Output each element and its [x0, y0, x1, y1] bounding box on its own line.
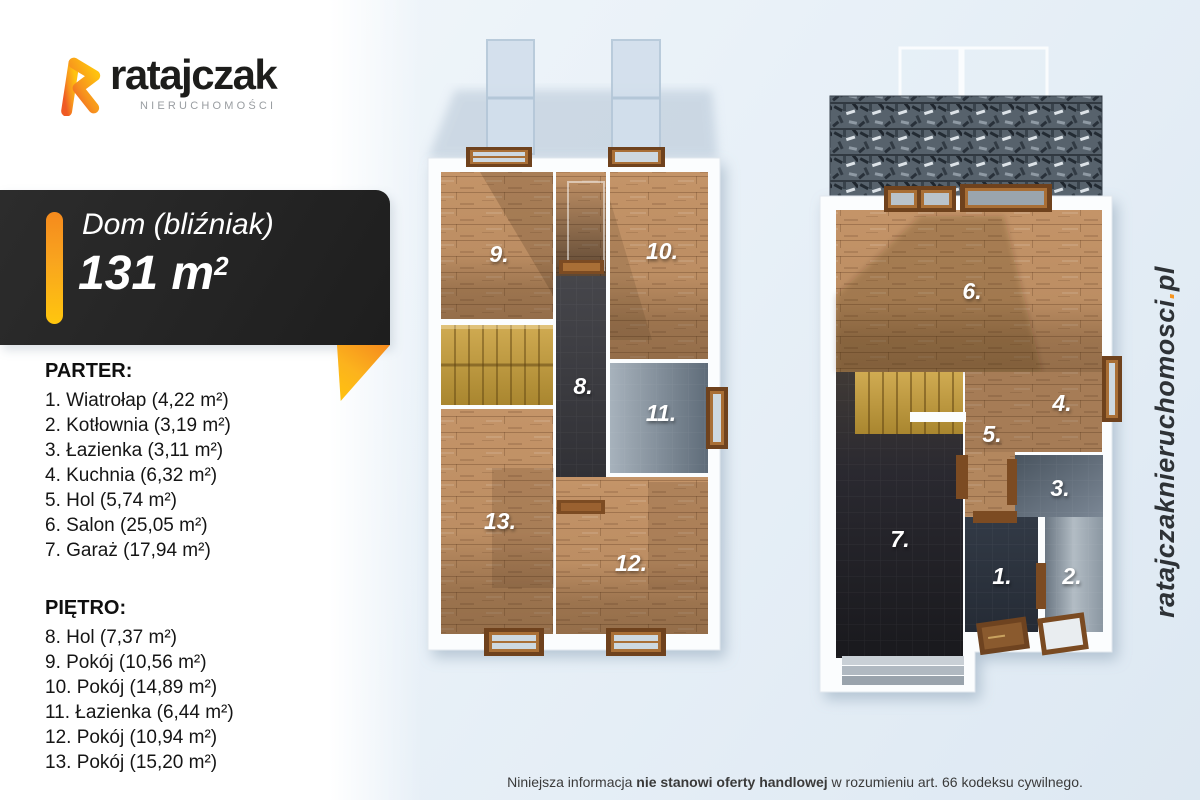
website-url: ratajczaknieruchomosci.pl [1150, 242, 1194, 642]
room-label-9: 9. [489, 241, 508, 267]
room-label-3: 3. [1050, 475, 1069, 501]
upper-staircase [441, 325, 553, 405]
upper-window-top-right [608, 147, 665, 167]
ground-floor-heading: PARTER: [45, 360, 385, 383]
ground-window-top-wide [960, 184, 1052, 212]
room-label-4: 4. [1051, 390, 1071, 416]
brand-logo: ratajczak NIERUCHOMOŚCI [50, 52, 276, 116]
room-label-5: 5. [982, 421, 1001, 447]
list-item: 6. Salon (25,05 m²) [45, 513, 385, 538]
list-item: 10. Pokój (14,89 m²) [45, 675, 385, 700]
property-title-card: Dom (bliźniak) 131 m2 [0, 190, 390, 345]
stairwell-rail [559, 260, 604, 274]
legal-disclaimer: Niniejsza informacja nie stanowi oferty … [390, 774, 1200, 790]
room-label-8: 8. [573, 373, 592, 399]
list-item: 3. Łazienka (3,11 m²) [45, 438, 385, 463]
website-name: ratajczaknieruchomosci [1150, 299, 1180, 618]
upper-floor-room-list: PIĘTRO: 8. Hol (7,37 m²) 9. Pokój (10,56… [45, 597, 385, 775]
brand-name: ratajczak [110, 52, 276, 98]
website-dot: . [1150, 291, 1180, 299]
room-label-12: 12. [615, 550, 647, 576]
room-10-floor [610, 172, 708, 359]
upper-floor-plan: 8. 9. 10. 11. 12. 13. [428, 40, 728, 656]
list-item: 7. Garaż (17,94 m²) [45, 538, 385, 563]
garage-door [842, 656, 964, 685]
area-superscript: 2 [214, 251, 228, 281]
property-type: Dom (bliźniak) [82, 208, 274, 242]
accent-bar [46, 212, 63, 324]
brand-subtitle: NIERUCHOMOŚCI [110, 100, 276, 112]
list-item: 4. Kuchnia (6,32 m²) [45, 463, 385, 488]
website-tld: pl [1150, 266, 1180, 291]
list-item: 8. Hol (7,37 m²) [45, 625, 385, 650]
upper-window-bottom-right [606, 628, 666, 656]
terrace [830, 96, 1102, 198]
flyer-canvas: 8. 9. 10. 11. 12. 13. [0, 0, 1200, 800]
disclaimer-suffix: w rozumieniu art. 66 kodeksu cywilnego. [828, 774, 1083, 790]
upper-window-bottom-left [484, 628, 544, 656]
list-item: 1. Wiatrołap (4,22 m²) [45, 388, 385, 413]
list-item: 9. Pokój (10,56 m²) [45, 650, 385, 675]
ratajczak-logo-icon [50, 52, 102, 116]
disclaimer-bold: nie stanowi oferty handlowej [636, 774, 827, 790]
pergola-shadows [900, 48, 1047, 98]
ground-window-right [1102, 356, 1122, 422]
list-item: 12. Pokój (10,94 m²) [45, 725, 385, 750]
list-item: 5. Hol (5,74 m²) [45, 488, 385, 513]
room-label-7: 7. [890, 526, 909, 552]
room-label-2: 2. [1061, 563, 1081, 589]
room-label-13: 13. [484, 508, 516, 534]
upper-floor-heading: PIĘTRO: [45, 597, 385, 620]
property-area: 131 m2 [78, 246, 229, 301]
room-label-6: 6. [962, 278, 981, 304]
ground-floor-room-list: PARTER: 1. Wiatrołap (4,22 m²) 2. Kotłow… [45, 360, 385, 563]
disclaimer-prefix: Niniejsza informacja [507, 774, 636, 790]
list-item: 13. Pokój (15,20 m²) [45, 750, 385, 775]
ground-floor-plan: 1. 2. 3. 4. 5. 6. 7. [820, 48, 1122, 692]
ground-staircase [855, 372, 966, 434]
upper-hall-door [557, 500, 605, 514]
list-item: 2. Kotłownia (3,19 m²) [45, 413, 385, 438]
upper-window-right [706, 387, 728, 449]
room-label-11: 11. [646, 400, 676, 426]
upper-window-top-left [466, 147, 532, 167]
room-label-10: 10. [646, 238, 678, 264]
brand-text-block: ratajczak NIERUCHOMOŚCI [110, 52, 276, 112]
ground-window-top-small [884, 186, 956, 212]
doormat [1040, 615, 1086, 653]
list-item: 11. Łazienka (6,44 m²) [45, 700, 385, 725]
room-label-1: 1. [992, 563, 1011, 589]
